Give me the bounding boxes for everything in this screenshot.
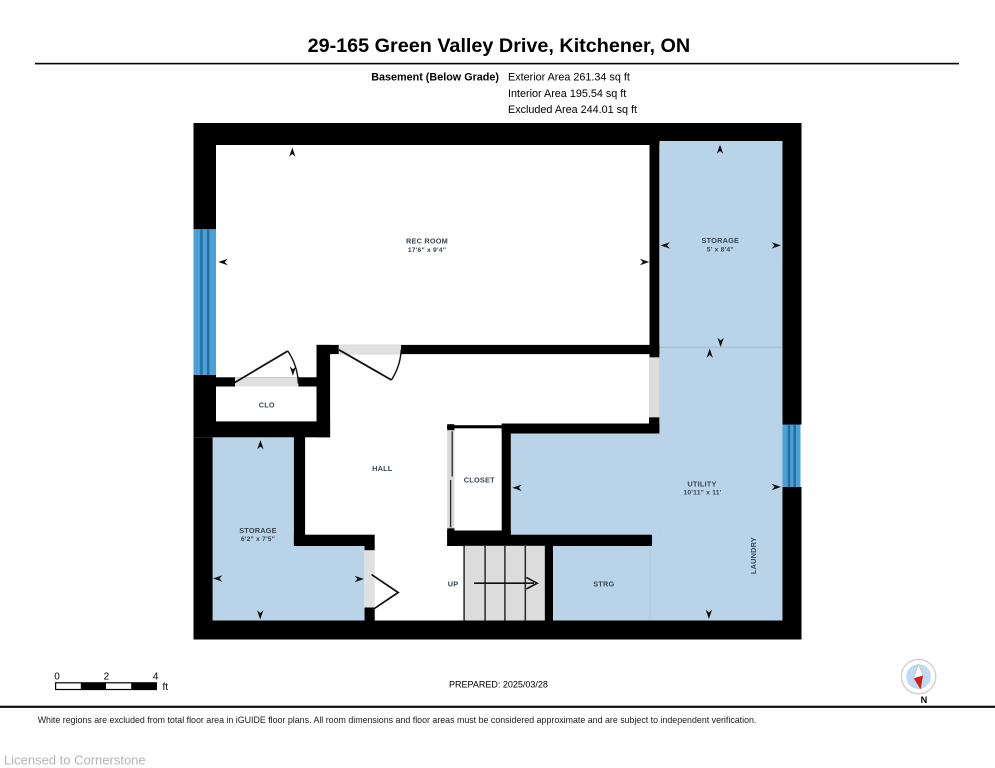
svg-text:CLOSET: CLOSET (464, 476, 495, 485)
svg-text:Exterior Area 261.34 sq ft: Exterior Area 261.34 sq ft (508, 72, 630, 84)
svg-text:STORAGE: STORAGE (702, 236, 740, 245)
svg-text:6'2" x 7'5": 6'2" x 7'5" (241, 536, 275, 543)
svg-text:STRG: STRG (593, 579, 614, 588)
svg-text:CLO: CLO (259, 401, 275, 410)
svg-text:REC ROOM: REC ROOM (406, 237, 448, 246)
svg-text:Excluded Area 244.01 sq ft: Excluded Area 244.01 sq ft (508, 104, 637, 116)
svg-text:PREPARED: 2025/03/28: PREPARED: 2025/03/28 (449, 680, 548, 690)
svg-text:5' x 8'4": 5' x 8'4" (707, 246, 734, 253)
svg-text:ft: ft (163, 682, 169, 693)
svg-text:LAUNDRY: LAUNDRY (749, 537, 758, 574)
svg-text:STORAGE: STORAGE (239, 526, 277, 535)
svg-text:Licensed to Cornerstone: Licensed to Cornerstone (4, 753, 146, 768)
svg-text:White regions are excluded fro: White regions are excluded from total fl… (38, 715, 757, 725)
svg-text:17'6" x 9'4": 17'6" x 9'4" (408, 247, 446, 254)
svg-text:UP: UP (448, 579, 459, 588)
svg-text:29-165 Green Valley Drive, Kit: 29-165 Green Valley Drive, Kitchener, ON (308, 35, 691, 57)
svg-text:Basement (Below Grade): Basement (Below Grade) (371, 72, 499, 84)
svg-text:10'11" x 11': 10'11" x 11' (683, 490, 721, 497)
svg-text:UTILITY: UTILITY (687, 479, 716, 488)
svg-text:2: 2 (104, 672, 110, 683)
svg-text:N: N (921, 695, 928, 705)
svg-text:4: 4 (153, 672, 159, 683)
svg-text:0: 0 (54, 672, 60, 683)
svg-text:Interior Area 195.54 sq ft: Interior Area 195.54 sq ft (508, 88, 626, 100)
svg-text:HALL: HALL (372, 464, 393, 473)
